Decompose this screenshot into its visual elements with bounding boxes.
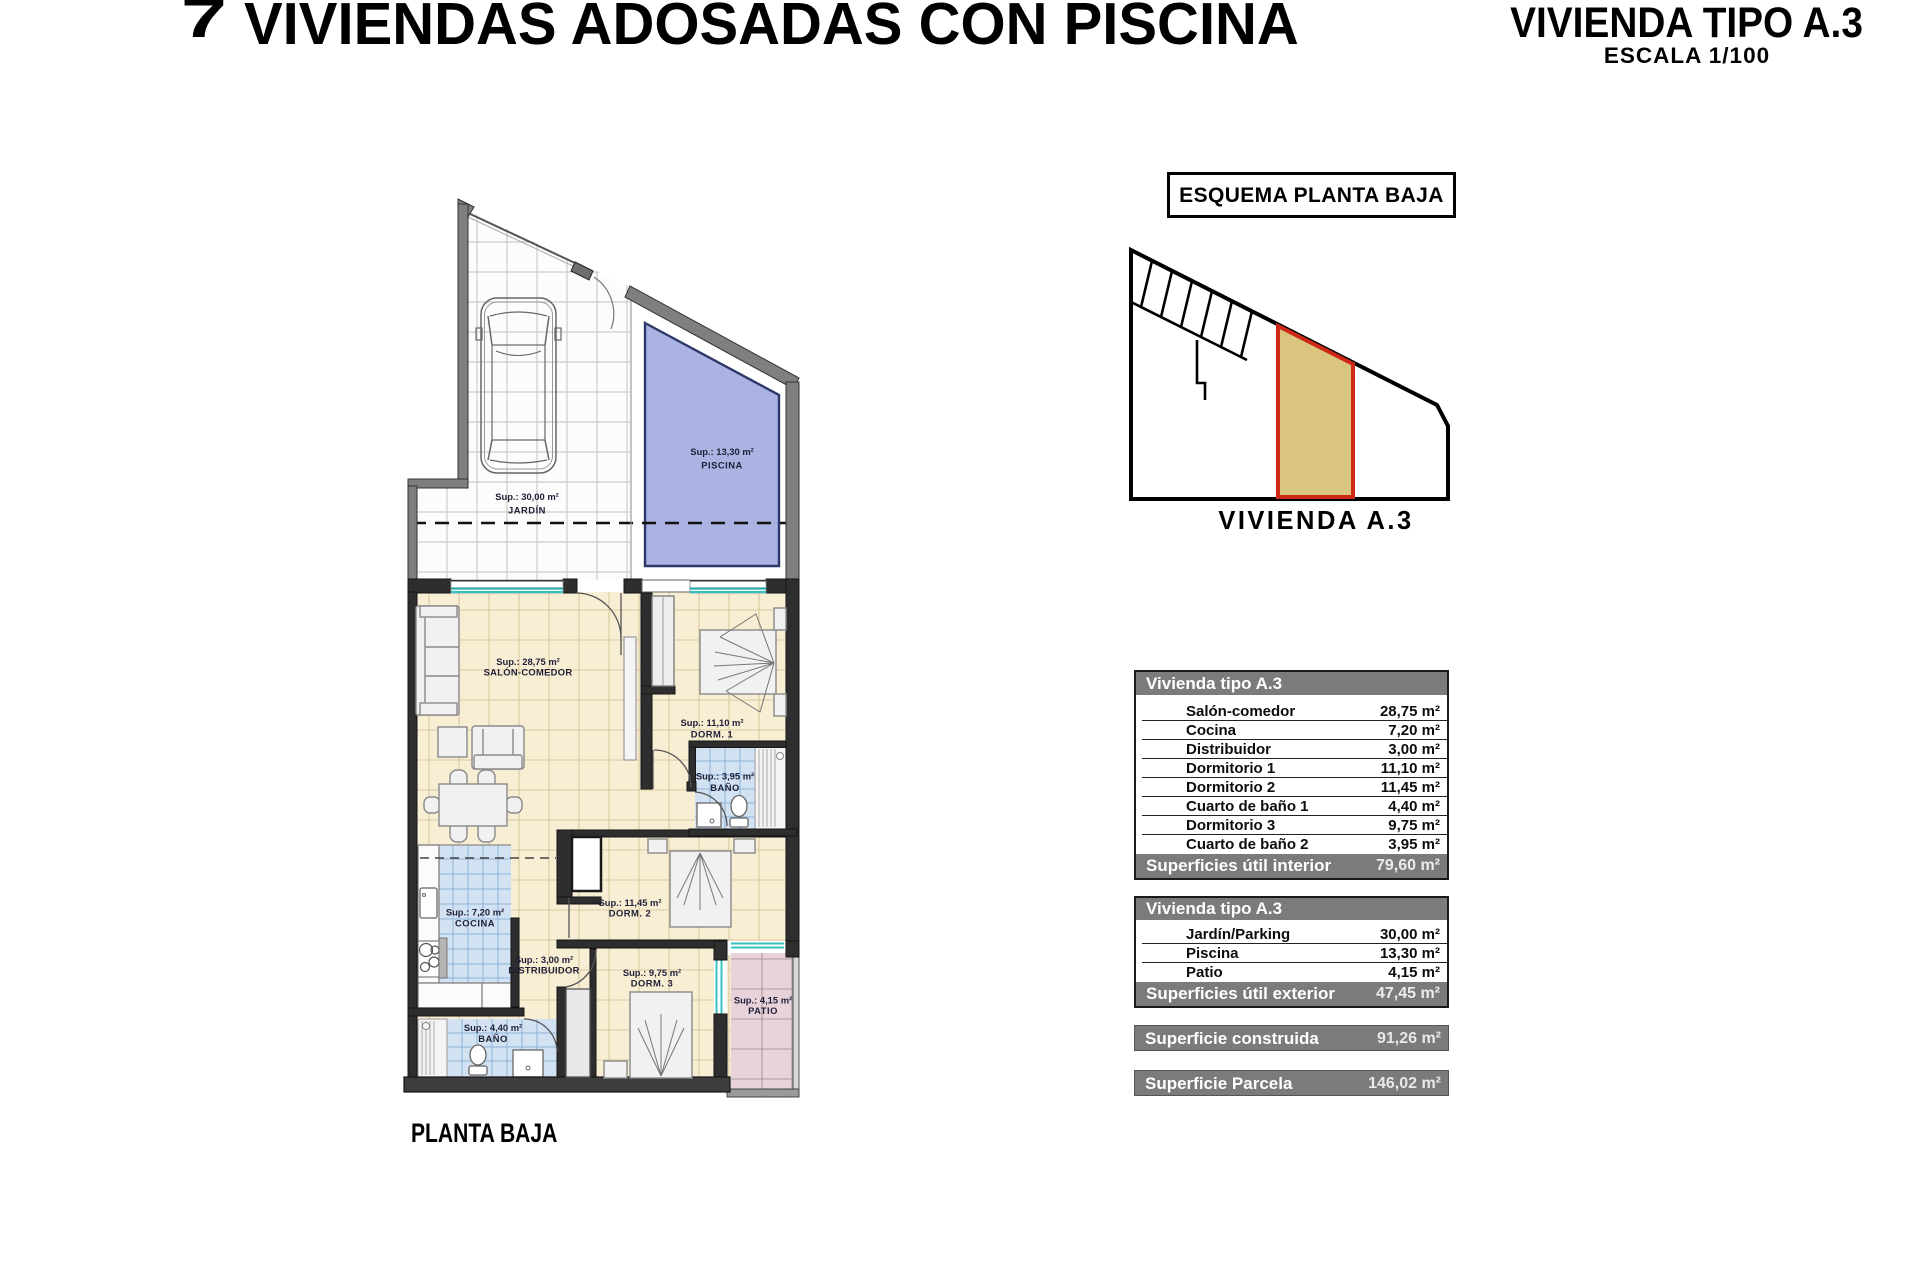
svg-text:DORM. 1: DORM. 1 <box>691 729 734 740</box>
svg-text:PATIO: PATIO <box>748 1005 778 1016</box>
svg-text:Sup.: 13,30 m²: Sup.: 13,30 m² <box>690 446 754 457</box>
svg-text:Sup.: 11,10 m²: Sup.: 11,10 m² <box>680 717 743 728</box>
svg-text:SALÓN-COMEDOR: SALÓN-COMEDOR <box>484 667 573 678</box>
svg-text:DORM. 3: DORM. 3 <box>631 978 674 989</box>
svg-text:Sup.: 28,75 m²: Sup.: 28,75 m² <box>496 656 560 667</box>
svg-text:Sup.: 7,20 m²: Sup.: 7,20 m² <box>446 907 504 918</box>
svg-text:BAÑO: BAÑO <box>478 1033 508 1044</box>
svg-text:COCINA: COCINA <box>455 918 495 929</box>
svg-text:DISTRIBUIDOR: DISTRIBUIDOR <box>508 965 579 976</box>
svg-text:Sup.: 3,00 m²: Sup.: 3,00 m² <box>515 954 573 965</box>
svg-text:Sup.: 11,45 m²: Sup.: 11,45 m² <box>598 897 661 908</box>
svg-text:DORM. 2: DORM. 2 <box>609 908 652 919</box>
svg-text:Sup.: 4,15 m²: Sup.: 4,15 m² <box>734 995 792 1006</box>
svg-text:Sup.: 4,40 m²: Sup.: 4,40 m² <box>464 1022 522 1033</box>
svg-text:BAÑO: BAÑO <box>710 782 740 793</box>
svg-text:Sup.: 9,75 m²: Sup.: 9,75 m² <box>623 967 681 978</box>
svg-text:Sup.: 30,00 m²: Sup.: 30,00 m² <box>495 491 559 502</box>
svg-text:JARDÍN: JARDÍN <box>508 505 546 516</box>
svg-text:PISCINA: PISCINA <box>701 460 743 471</box>
svg-text:Sup.: 3,95 m²: Sup.: 3,95 m² <box>696 771 754 782</box>
